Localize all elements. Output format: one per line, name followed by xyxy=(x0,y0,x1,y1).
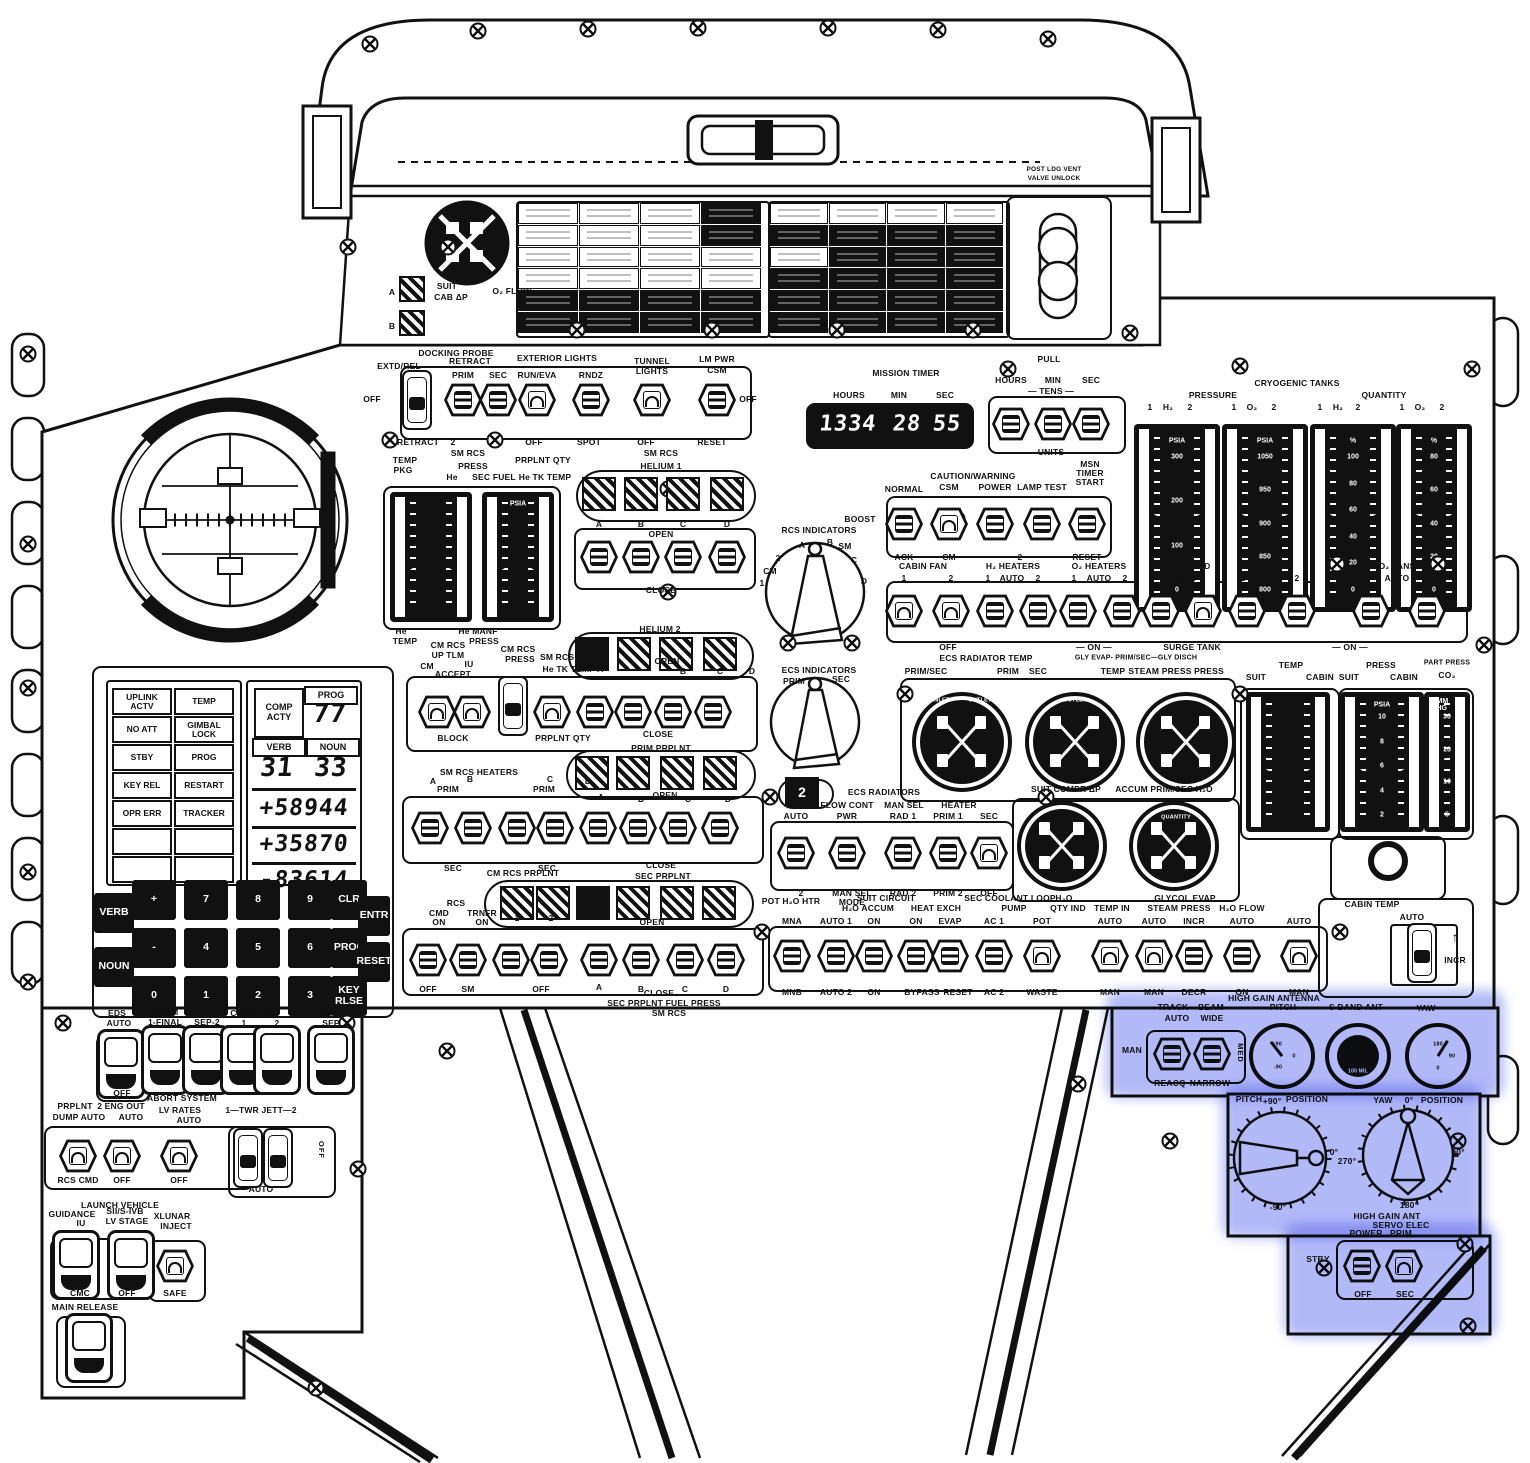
screw xyxy=(1430,556,1447,573)
prim-prplnt-c[interactable] xyxy=(659,811,697,845)
h2-heaters-2[interactable] xyxy=(1019,594,1057,628)
msn-timer-start-reset[interactable] xyxy=(1068,507,1106,541)
panel-label: 180° xyxy=(1400,1201,1418,1210)
panel-label: AC 1 xyxy=(984,917,1004,926)
annunciator-cell xyxy=(887,312,945,333)
sm-rcs-heaters-a[interactable] xyxy=(411,811,449,845)
dsky-key-6[interactable]: 6 xyxy=(288,928,332,968)
panel-label: PWR xyxy=(837,812,857,821)
panel-label: SUIT CIRCUIT xyxy=(857,894,916,903)
panel-label: CSM/LM xyxy=(144,1008,179,1017)
cabin-temp-auto-man[interactable] xyxy=(1280,939,1318,973)
screw xyxy=(350,1161,367,1178)
panel-label: PRPLNT QTY xyxy=(515,456,571,465)
rcs-cmd[interactable] xyxy=(409,943,447,977)
panel-label: PRPLNT xyxy=(57,1102,92,1111)
heat-exch[interactable] xyxy=(897,939,935,973)
prim-prplnt-d-talkback xyxy=(703,756,737,790)
dsky-status-light xyxy=(112,828,172,855)
panel-label: 2 xyxy=(776,554,781,563)
annunciator-cell xyxy=(640,268,700,289)
panel-label: CLOSE xyxy=(646,586,676,595)
panel-label: H₂ FANS xyxy=(1252,562,1288,571)
panel-label: RCS INDICATORS xyxy=(781,526,856,535)
annunciator-cell xyxy=(579,203,639,224)
panel-label: GLY EVAP- PRIM/SEC—GLY DISCH xyxy=(1075,655,1197,662)
annunciator-cell xyxy=(579,312,639,333)
panel-label: RUN/EVA xyxy=(517,371,556,380)
panel-label: STBY xyxy=(1306,1255,1329,1264)
panel-label: S BAND ANT xyxy=(1329,1003,1383,1012)
glycol-evap-h2o-flow[interactable] xyxy=(1223,939,1261,973)
panel-label: POT H₂O HTR xyxy=(762,897,820,906)
panel-label: REACQ xyxy=(1154,1079,1186,1088)
panel-label: SEP xyxy=(322,1019,340,1028)
cryo-h2-quantity-tape: %100806040200 xyxy=(1310,424,1396,612)
screw xyxy=(820,20,837,37)
ecs-rad-flow-cont-auto[interactable] xyxy=(777,836,815,870)
sm-rcs-heaters-d[interactable] xyxy=(536,811,574,845)
timer-hours[interactable] xyxy=(992,407,1030,441)
tape-scale-number: 80 xyxy=(1349,480,1357,487)
suit-circuit-h2o-accum-1[interactable] xyxy=(817,939,855,973)
prim-prplnt-a-talkback xyxy=(575,756,609,790)
screw xyxy=(308,1380,325,1397)
panel-label: B xyxy=(638,795,644,804)
cm-rcs-prplnt-1[interactable] xyxy=(492,943,530,977)
tape-scale-number: 40 xyxy=(1349,533,1357,540)
ecs-rad-flow-cont-pwr[interactable] xyxy=(828,836,866,870)
panel-label: CM RCS xyxy=(431,641,466,650)
sm-rcs-helium1-d[interactable] xyxy=(708,540,746,574)
panel-label: HEATER xyxy=(941,801,977,810)
group-frame xyxy=(1006,196,1112,340)
helium2-c[interactable] xyxy=(654,695,692,729)
panel-label: SUIT COMPR ΔP xyxy=(1031,785,1101,794)
tape-unit-label: PSIA xyxy=(1257,437,1273,444)
suit-cab-dp-o2-flow-gauge xyxy=(426,202,508,284)
tape-scale-number: 100 xyxy=(1347,454,1359,461)
cm-sm-sep-2[interactable] xyxy=(253,1025,301,1095)
panel-label: AUTO xyxy=(119,1113,144,1122)
panel-label: SM RCS xyxy=(451,449,485,458)
prplnt-qty-switch[interactable] xyxy=(533,695,571,729)
screw xyxy=(1460,1318,1477,1335)
hga-beam-switch[interactable] xyxy=(1193,1037,1231,1071)
panel-label: ON xyxy=(475,918,488,927)
annunciator-cell xyxy=(770,203,828,224)
panel-label: SEC xyxy=(489,371,507,380)
panel-label: CMC xyxy=(70,1289,90,1298)
panel-label: 2 xyxy=(1424,574,1429,583)
cm-rcs-prplnt-2[interactable] xyxy=(530,943,568,977)
panel-label: — ON — xyxy=(1332,643,1368,652)
panel-label: +90 xyxy=(1272,1042,1282,1048)
cabin-fan-2[interactable] xyxy=(932,594,970,628)
annunciator-cell xyxy=(701,203,761,224)
timer-sec[interactable] xyxy=(1072,407,1110,441)
panel-label: B xyxy=(467,775,473,784)
screw xyxy=(487,432,504,449)
exterior-lights-run-eva[interactable] xyxy=(518,383,556,417)
panel-label: SEC PRPLNT xyxy=(635,872,691,881)
dsky-status-light xyxy=(174,828,234,855)
panel-label: TEMP xyxy=(393,456,417,465)
tape-scale-number: 6 xyxy=(1380,763,1384,770)
panel-label: PRIM xyxy=(533,785,555,794)
tape-scale-number: 40 xyxy=(1430,520,1438,527)
panel-label: RETRACT xyxy=(397,438,439,447)
he-tk-temp-a[interactable] xyxy=(576,695,614,729)
sec-prplnt-a[interactable] xyxy=(580,943,618,977)
dsky-key-verb[interactable]: VERB xyxy=(94,893,134,933)
temp-in[interactable] xyxy=(1091,939,1129,973)
panel-label: — ON — xyxy=(1076,643,1112,652)
panel-label: A xyxy=(430,777,436,786)
panel-label: TUNNEL xyxy=(634,357,670,366)
panel-label: C xyxy=(682,985,688,994)
glycol-evap-steam-press-auto-man[interactable] xyxy=(1135,939,1173,973)
glycol-evap-steam-press-incr-decr[interactable] xyxy=(1175,939,1213,973)
dsky-key-4[interactable]: 4 xyxy=(184,928,228,968)
dsky-key-9[interactable]: 9 xyxy=(288,880,332,920)
panel-label: RETRACT xyxy=(449,357,491,366)
hga-pitch-meter xyxy=(1249,1023,1315,1089)
main-release-switch[interactable] xyxy=(65,1313,113,1383)
panel-label: RNDZ xyxy=(579,371,603,380)
ecs-rad-heater-prim[interactable] xyxy=(929,836,967,870)
screw xyxy=(20,974,37,991)
h2-heaters-1[interactable] xyxy=(976,594,1014,628)
o2-fans-1[interactable] xyxy=(1352,594,1390,628)
annunciator-cell xyxy=(770,312,828,333)
panel-label: SEC xyxy=(1396,1290,1414,1299)
tape-scale-number: 60 xyxy=(1430,487,1438,494)
xlunar-inject-switch[interactable] xyxy=(156,1249,194,1283)
lm-pwr-csm[interactable] xyxy=(698,383,736,417)
rcs-trnfr[interactable] xyxy=(449,943,487,977)
panel-label: OFF xyxy=(113,1176,131,1185)
up-tlm-cm[interactable] xyxy=(418,695,456,729)
dsky-key-1[interactable]: 1 xyxy=(184,976,228,1016)
helium1-a-talkback xyxy=(582,477,616,511)
dsky-key-+[interactable]: + xyxy=(132,880,176,920)
panel-label: CM/SM SEP xyxy=(230,1009,280,1018)
screw xyxy=(844,635,861,652)
o2-fans-2[interactable] xyxy=(1408,594,1446,628)
panel-label: D xyxy=(749,667,755,676)
tape-scale-number: 0 xyxy=(1432,586,1436,593)
panel-label: LV RATES xyxy=(159,1106,201,1115)
hga-servo-elec-switch[interactable] xyxy=(1385,1249,1423,1283)
sec-prplnt-c[interactable] xyxy=(666,943,704,977)
panel-label: CLOSE xyxy=(646,861,676,870)
panel-label: B xyxy=(827,538,833,547)
sm-rcs-helium1-a[interactable] xyxy=(580,540,618,574)
panel-label: D xyxy=(724,520,730,529)
h2-fans-1[interactable] xyxy=(1228,594,1266,628)
ecs-rad-man-sel-rad[interactable] xyxy=(884,836,922,870)
docking-probe-extd-rel-lever[interactable] xyxy=(402,370,432,430)
o2-press-ind-tank1[interactable] xyxy=(1184,594,1222,628)
sm-rcs-heaters-c[interactable] xyxy=(498,811,536,845)
panel-label: WIDE xyxy=(1201,1014,1224,1023)
panel-label: PUMP xyxy=(1001,904,1026,913)
panel-label: +90° xyxy=(1263,1097,1282,1106)
panel-label: O₂ FANS xyxy=(1379,562,1416,571)
panel-label: AUTO xyxy=(1142,917,1167,926)
panel-label: OPEN xyxy=(649,530,674,539)
panel-label: CRYOGENIC TANKS xyxy=(1254,379,1339,388)
panel-label: PITCH xyxy=(1236,1095,1263,1104)
panel-label: MISSION TIMER xyxy=(872,369,939,378)
panel-label: O₂ PRESS IND xyxy=(1150,562,1211,571)
panel-label: 2 xyxy=(1356,403,1361,412)
cw-power[interactable] xyxy=(976,507,1014,541)
evap-reset[interactable] xyxy=(931,939,969,973)
panel-label: 2 xyxy=(275,1019,280,1028)
sec-prplnt-d[interactable] xyxy=(707,943,745,977)
panel-label: H₂O FLOW xyxy=(1219,904,1265,913)
panel-label: He xyxy=(446,473,457,482)
o2-heaters-2[interactable] xyxy=(1103,594,1141,628)
annunciator-cell xyxy=(579,247,639,268)
twr-jett-2[interactable] xyxy=(263,1128,293,1188)
tape-scale-number: 800 xyxy=(1259,586,1271,593)
suit-circuit-h2o-accum-on[interactable] xyxy=(855,939,893,973)
sec-prplnt-d-talkback xyxy=(702,886,736,920)
hga-track-switch[interactable] xyxy=(1153,1037,1191,1071)
panel-label: PRIM xyxy=(437,785,459,794)
annunciator-cell xyxy=(829,290,887,311)
panel-label: He xyxy=(395,627,406,636)
panel-label: SEC xyxy=(444,864,462,873)
screw xyxy=(55,1015,72,1032)
panel-label: AUTO xyxy=(1098,917,1123,926)
panel-label: PRESS xyxy=(469,637,499,646)
panel-label: ON xyxy=(909,917,922,926)
panel-label: AUTO xyxy=(1287,917,1312,926)
helium1-c-talkback xyxy=(666,477,700,511)
annunciator-cell xyxy=(829,247,887,268)
sec-coolant-loop-pump[interactable] xyxy=(975,939,1013,973)
screw xyxy=(690,20,707,37)
h2-fans-2[interactable] xyxy=(1278,594,1316,628)
panel-label: INCR xyxy=(1183,917,1205,926)
panel-label: OFF xyxy=(739,395,757,404)
twr-jett-1[interactable] xyxy=(233,1128,263,1188)
dsky-status-light: TRACKER xyxy=(174,800,234,827)
dsky-key-reset[interactable]: RESET xyxy=(358,942,390,982)
up-tlm-iu[interactable] xyxy=(453,695,491,729)
tape-scale-number: 5 xyxy=(1445,812,1449,819)
panel-label: BLOCK xyxy=(437,734,468,743)
panel-label: LAMP TEST xyxy=(1017,483,1067,492)
annunciator-cell xyxy=(887,203,945,224)
annunciator-cell xyxy=(946,203,1004,224)
tape-scale-number: 20 xyxy=(1349,560,1357,567)
helium1-d-talkback xyxy=(710,477,744,511)
sm-rcs-heaters-b[interactable] xyxy=(454,811,492,845)
panel-label: EXTERIOR LIGHTS xyxy=(517,354,597,363)
panel-label: AUTO xyxy=(1087,574,1112,583)
panel-label: EXTD/REL xyxy=(377,362,421,371)
sivb-lm-sep[interactable] xyxy=(307,1025,355,1095)
sm-rcs-helium1-b[interactable] xyxy=(622,540,660,574)
cabin-fan-1[interactable] xyxy=(885,594,923,628)
tape-scale-number: 80 xyxy=(1430,454,1438,461)
panel-label: DUMP AUTO xyxy=(53,1113,106,1122)
panel-label: ABORT SYSTEM xyxy=(147,1094,217,1103)
helium2-b[interactable] xyxy=(614,695,652,729)
suit-cabin-temp-tape xyxy=(1246,692,1330,832)
screw xyxy=(20,346,37,363)
annunciator-cell xyxy=(829,225,887,246)
group-frame xyxy=(246,680,362,886)
dsky-status-light: PROG xyxy=(174,744,234,771)
panel-label: SEC PRPLNT FUEL PRESS xyxy=(607,999,721,1008)
h2o-qty-ind[interactable] xyxy=(1023,939,1061,973)
cw-lamp-test[interactable] xyxy=(1023,507,1061,541)
panel-label: AUTO 2 xyxy=(820,988,852,997)
panel-label: BOOST xyxy=(844,515,875,524)
panel-label: MAIN RELEASE xyxy=(52,1303,119,1312)
panel-label: CLOSE xyxy=(643,730,673,739)
dsky-key-noun[interactable]: NOUN xyxy=(94,947,134,987)
dsky-key--[interactable]: - xyxy=(132,928,176,968)
sec-prplnt-a-talkback xyxy=(576,886,610,920)
hga-yaw-meter xyxy=(1405,1023,1471,1089)
panel-label: — UNITS — xyxy=(1026,448,1075,457)
dsky-status-light: NO ATT xyxy=(112,716,172,743)
panel-label: PRPLNT QTY xyxy=(535,734,591,743)
panel-label: B xyxy=(638,520,644,529)
helium2-b-talkback xyxy=(617,637,651,671)
panel-label: TEMP IN xyxy=(1094,904,1130,913)
panel-label: TANK 1 xyxy=(1164,574,1195,583)
cm-rcs-press-lever[interactable] xyxy=(498,676,528,736)
panel-label: A xyxy=(598,793,604,802)
tape-scale-number: 0 xyxy=(1351,586,1355,593)
panel-label: AUTO xyxy=(177,1116,202,1125)
panel-label: 2 xyxy=(1440,403,1445,412)
annunciator-cell xyxy=(640,225,700,246)
annunciator-cell xyxy=(887,225,945,246)
tape-scale-number: 950 xyxy=(1259,487,1271,494)
annunciator-cell xyxy=(640,203,700,224)
panel-label: D xyxy=(861,577,867,586)
cw-normal-ack[interactable] xyxy=(885,507,923,541)
panel-label: He TK TEMP xyxy=(519,473,572,482)
panel-label: CABIN FAN xyxy=(899,562,947,571)
docking-probe-retract-sec[interactable] xyxy=(479,383,517,417)
panel-label: NARROW xyxy=(1190,1079,1230,1088)
dsky-key-8[interactable]: 8 xyxy=(236,880,280,920)
panel-label: MIN xyxy=(1045,376,1061,385)
panel-label: BYPASS xyxy=(904,988,940,997)
helium2-d[interactable] xyxy=(694,695,732,729)
timer-min[interactable] xyxy=(1034,407,1072,441)
screw xyxy=(704,322,721,339)
panel-label: SEC xyxy=(1082,376,1100,385)
dsky-key-entr[interactable]: ENTR xyxy=(358,896,390,936)
cabin-temp-knob[interactable] xyxy=(1407,923,1437,983)
screw xyxy=(1232,358,1249,375)
panel-label: 2 xyxy=(1295,574,1300,583)
sec-prplnt-b[interactable] xyxy=(622,943,660,977)
prplnt-dump-auto[interactable] xyxy=(59,1139,97,1173)
ecs-rad-heater-sec[interactable] xyxy=(970,836,1008,870)
sm-rcs-prplnt-qty-tape: PSIA xyxy=(482,492,554,622)
hga-s-band-signal-meter xyxy=(1325,1023,1391,1089)
panel-label: SURGE TANK xyxy=(1163,643,1221,652)
panel-label: C xyxy=(680,520,686,529)
panel-label: C xyxy=(547,775,553,784)
dsky-key-5[interactable]: 5 xyxy=(236,928,280,968)
cw-csm-cm[interactable] xyxy=(930,507,968,541)
panel-label: INJECT xyxy=(160,1222,191,1231)
panel-label: GUIDANCE xyxy=(49,1210,96,1219)
tape-scale-number: 10 xyxy=(1378,714,1386,721)
panel-label: ON xyxy=(867,917,880,926)
panel-label: POWER xyxy=(978,483,1011,492)
annunciator-cell xyxy=(887,247,945,268)
two-eng-out-auto[interactable] xyxy=(103,1139,141,1173)
tape-unit-label: % xyxy=(1431,437,1437,444)
panel-label: 1 xyxy=(1148,403,1153,412)
panel-label: He TK TEMP A xyxy=(543,665,604,674)
o2-heaters-1[interactable] xyxy=(1059,594,1097,628)
panel-label: PART PRESS xyxy=(1424,660,1470,667)
panel-label: PRIM 2 xyxy=(933,889,963,898)
tunnel-lights[interactable] xyxy=(633,383,671,417)
dsky-key-7[interactable]: 7 xyxy=(184,880,228,920)
hga-power-switch[interactable] xyxy=(1343,1249,1381,1283)
o2-press-ind[interactable] xyxy=(1142,594,1180,628)
prim-prplnt-d[interactable] xyxy=(701,811,739,845)
sec-prplnt-c-talkback xyxy=(660,886,694,920)
sm-rcs-helium1-c[interactable] xyxy=(664,540,702,574)
annunciator-cell xyxy=(518,247,578,268)
panel-label: IU xyxy=(465,660,474,669)
pot-h2o-htr[interactable] xyxy=(773,939,811,973)
dsky-status-light: GIMBAL LOCK xyxy=(174,716,234,743)
prim-prplnt-b[interactable] xyxy=(619,811,657,845)
exterior-lights-rndz[interactable] xyxy=(572,383,610,417)
screw xyxy=(440,239,457,256)
panel-label: TEMP xyxy=(1101,667,1125,676)
panel-label: PULL xyxy=(1038,355,1061,364)
tape-unit-label: PSIA xyxy=(1374,701,1390,708)
panel-label: SUIT xyxy=(1246,673,1266,682)
panel-label: A xyxy=(799,541,805,550)
prim-prplnt-a[interactable] xyxy=(579,811,617,845)
annunciator-cell xyxy=(701,290,761,311)
panel-label: LIGHTS xyxy=(636,367,668,376)
annunciator-cell xyxy=(829,203,887,224)
panel-label: PRESSURE xyxy=(1189,391,1237,400)
panel-label: D xyxy=(725,795,731,804)
lv-rates-auto[interactable] xyxy=(160,1139,198,1173)
panel-label: AUTO xyxy=(1000,574,1025,583)
tape-scale-number: 0 xyxy=(1175,586,1179,593)
docking-probe-retract-prim[interactable] xyxy=(444,383,482,417)
ecs-indicators-selector[interactable] xyxy=(771,678,859,768)
panel-label: PRESS xyxy=(1194,667,1224,676)
panel-label: H₂ xyxy=(1163,403,1173,412)
panel-label: MAN xyxy=(1100,988,1120,997)
panel-label: 1 xyxy=(242,1019,247,1028)
